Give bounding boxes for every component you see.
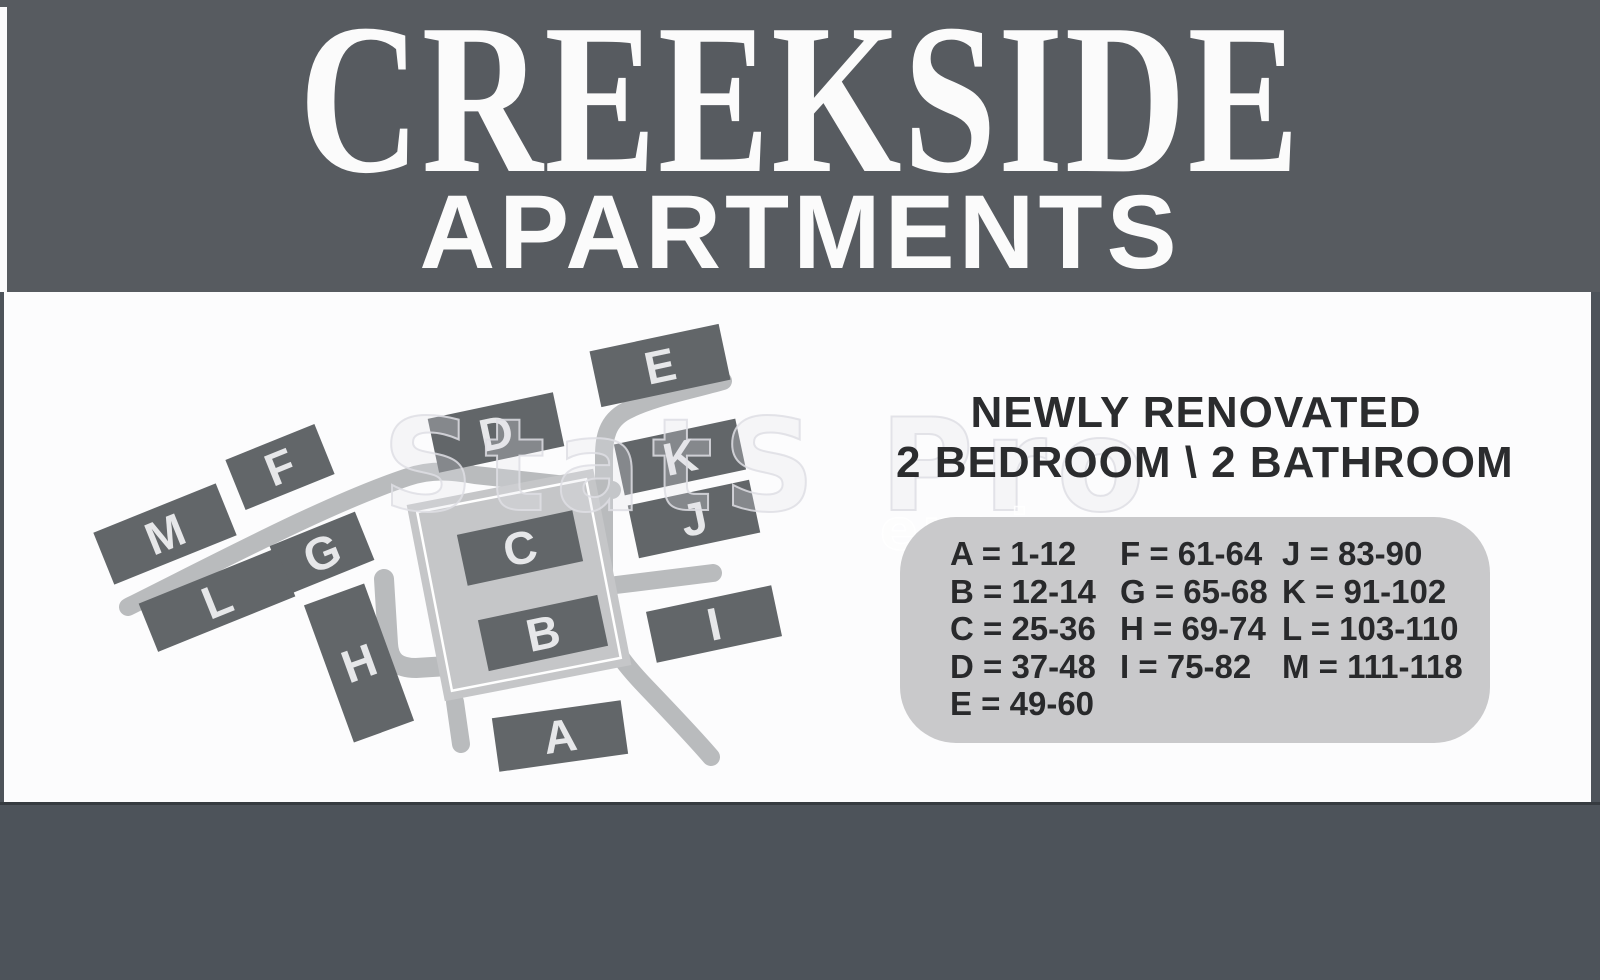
building-a-label: A (540, 711, 579, 761)
building-g-label: G (297, 525, 347, 581)
legend-entry-k: K = 91-102 (1282, 573, 1463, 611)
legend-entry-f: F = 61-64 (1120, 535, 1268, 573)
legend-column-3: J = 83-90K = 91-102L = 103-110M = 111-11… (1282, 535, 1463, 685)
legend-entry-m: M = 111-118 (1282, 648, 1463, 686)
legend-entry-l: L = 103-110 (1282, 610, 1463, 648)
road-stub-south (455, 702, 461, 744)
legend-entry-j: J = 83-90 (1282, 535, 1463, 573)
building-k-label: K (659, 431, 701, 483)
building-b-label: B (522, 607, 564, 659)
content-panel: ABCDEFGHIJKLM StatS Pro engine NEWLY REN… (4, 292, 1591, 802)
building-e-label: E (640, 339, 680, 390)
promo-line-2: 2 BEDROOM \ 2 BATHROOM (896, 438, 1496, 488)
building-j-label: J (677, 494, 712, 544)
legend-entry-g: G = 65-68 (1120, 573, 1268, 611)
legend-column-2: F = 61-64G = 65-68H = 69-74I = 75-82 (1120, 535, 1268, 685)
legend-column-1: A = 1-12B = 12-14C = 25-36D = 37-48E = 4… (950, 535, 1096, 723)
road-spur-east (616, 573, 713, 585)
legend-entry-d: D = 37-48 (950, 648, 1096, 686)
promo-line-1: NEWLY RENOVATED (896, 388, 1496, 438)
sign-subtitle: APARTMENTS (0, 180, 1600, 285)
parking-lot (407, 469, 632, 702)
legend-entry-h: H = 69-74 (1120, 610, 1268, 648)
building-f-label: F (258, 440, 301, 493)
header-band: CREEKSIDE APARTMENTS (0, 0, 1600, 292)
legend-entry-c: C = 25-36 (950, 610, 1096, 648)
legend-entry-a: A = 1-12 (950, 535, 1096, 573)
building-d-label: D (475, 406, 517, 458)
building-h-label: H (336, 636, 383, 691)
building-i-label: I (703, 600, 725, 648)
footer-band (0, 802, 1600, 980)
apartment-sign: CREEKSIDE APARTMENTS ABCDEFGHIJKLM StatS… (0, 0, 1600, 980)
legend-entry-e: E = 49-60 (950, 685, 1096, 723)
building-c-label: C (499, 522, 541, 574)
building-l-label: L (195, 573, 238, 626)
legend-entry-b: B = 12-14 (950, 573, 1096, 611)
legend-entry-i: I = 75-82 (1120, 648, 1268, 686)
building-m-label: M (139, 505, 192, 562)
